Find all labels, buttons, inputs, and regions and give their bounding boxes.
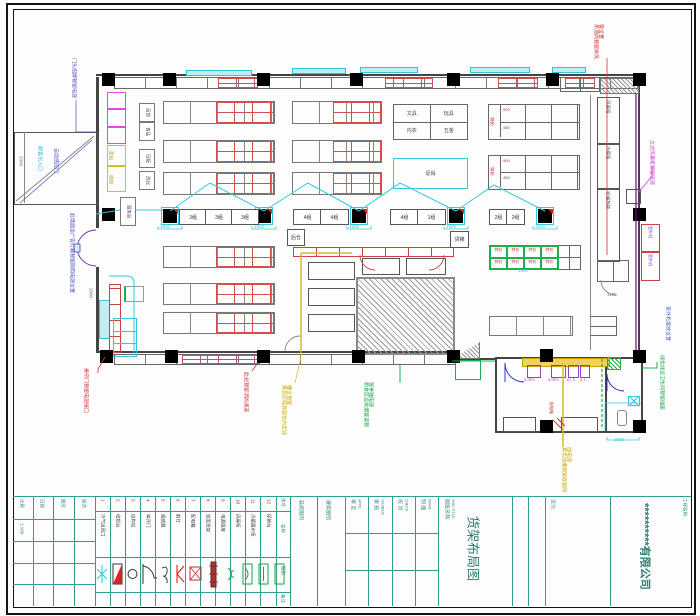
yellow-leader: [295, 357, 301, 383]
legend-name: 结构柱: [130, 514, 135, 556]
checkout-group-box: 2组: [506, 209, 525, 225]
aisle-label: 百货: [145, 108, 150, 117]
legend-no: 10: [235, 499, 240, 509]
checkout-group-box: 3组: [231, 209, 259, 225]
dim-text: 1500: [535, 224, 545, 229]
dim-text: 1500: [614, 437, 624, 442]
legend-name: 烟感器: [160, 514, 165, 556]
signoff-label: 审 核: [372, 499, 377, 525]
checkout-group-box: 3组: [179, 209, 207, 225]
red-leader: [98, 357, 257, 373]
circle-icon: [128, 570, 137, 579]
small-label-box: 后仓: [287, 229, 305, 246]
shelf-icon: [209, 562, 218, 587]
dim-text: 1500: [254, 224, 264, 229]
annotation-roller-door: 卷帘门预留电源接口: [82, 368, 98, 420]
service-desk-label: 服务台: [126, 205, 131, 219]
signoff-sub: APPD: [357, 499, 361, 525]
yellow-cable-run: [301, 253, 563, 447]
air-curtain-icon: [243, 564, 252, 584]
legend-header-note: 备注: [280, 594, 285, 606]
legend-no: 12: [266, 499, 271, 509]
legend-no: 2: [115, 499, 120, 509]
annotation-outdoor-pos: 室外机摆放位置: [664, 306, 669, 354]
legend-name: 配电箱: [190, 514, 195, 556]
info-label: 版次: [81, 499, 86, 517]
dim-text: 1100: [607, 292, 617, 297]
blue-door-arc: [607, 374, 624, 391]
signoff-label: 校 对: [396, 499, 401, 525]
annotation-entry-sign: 门头招牌预留电源: [70, 58, 75, 138]
signoff-sub: CHECK: [404, 499, 408, 525]
legend-group-header: 建筑图例: [324, 500, 329, 544]
annotation-leader: [76, 100, 96, 132]
annotation-auto-door: 自动感应门: [52, 148, 57, 202]
legend-header-name: 名称: [280, 524, 285, 536]
service-desk-box: 服务台: [120, 197, 136, 226]
annotation-vent-right: 吊顶内预留排风管位置: [592, 24, 608, 60]
legend-name: 促销台: [266, 514, 271, 556]
legend-symbols: [95, 560, 291, 590]
signoff-sub: 1014B028: [380, 499, 384, 525]
legend-no: 5: [160, 499, 165, 509]
legend-name: 冷藏展示柜: [250, 514, 255, 556]
annotation-fire-exit: 此处预留消防通道: [242, 372, 258, 416]
legend-name: 电源插座: [220, 514, 225, 556]
aisle-label-box: 百货: [139, 103, 155, 122]
legend-name: 双面货架: [205, 514, 210, 556]
legend-name: 风幕柜: [235, 514, 240, 556]
dim-text: 3300: [18, 156, 23, 176]
aisle-label-box: 洗化: [139, 171, 155, 190]
design-label: 设计:: [549, 499, 554, 523]
legend-no: 4: [145, 499, 150, 509]
equipment-code: 3-6P4: [524, 377, 535, 382]
drawing-name-label: 图纸名称:: [443, 499, 448, 539]
checkout-group-box: 4组: [390, 209, 419, 225]
annotation-air-curtain: 立式风幕柜预留电源: [648, 140, 653, 202]
dim-text: 1950: [518, 268, 528, 273]
legend-name: 射灯: [175, 514, 180, 556]
equipment-code: 5-6P4: [548, 377, 559, 382]
signoff-sub: DRAW: [427, 499, 431, 525]
dim-text: 2000: [88, 288, 93, 308]
red-door-arcs: [360, 255, 444, 270]
smoke-icon: [162, 567, 167, 583]
annotation-yellow-right: 黄色线槽预留收银网线电源: [560, 447, 582, 493]
aisle-label: 日配: [145, 154, 150, 163]
signoff-label: 审 定: [349, 499, 354, 525]
door-icon: [143, 564, 157, 584]
legend-name: 单开门: [145, 514, 150, 556]
annotation-yellow-left: 黄色区域收银台内走线槽位预留: [280, 385, 302, 435]
annotation-power-box: 配电箱: [549, 402, 553, 424]
equipment-code: 4-1: [580, 377, 586, 382]
promo-icon: [275, 564, 284, 584]
spotlight-icon: [177, 565, 184, 583]
checkout-group-box: 3组: [205, 209, 233, 225]
dim-text: 1500: [160, 224, 170, 229]
snowflake-icon: [97, 565, 107, 583]
legend-no: 7: [190, 499, 195, 509]
legend-no: 6: [175, 499, 180, 509]
annotation-green-center: 熟食区设排烟管道预留单独电源: [362, 382, 386, 428]
washroom-cyan-lines: [605, 403, 641, 431]
cooler-icon: [259, 564, 268, 584]
small-label-box: 货梯: [450, 231, 469, 248]
annotation-green-right: 绿色线设卫生间预留插座: [658, 355, 663, 427]
blue-door-arc: [505, 363, 524, 382]
socket-icon: [228, 568, 234, 580]
aisle-label-box: 食品: [139, 122, 155, 141]
cyan-counter-path: [109, 276, 134, 355]
checkout-group-box: 4组: [293, 209, 322, 225]
project-name-label: 工程名称:: [682, 498, 687, 528]
equipment-code: 1C-3: [566, 377, 575, 382]
drawing-title: 货架布局图: [466, 516, 480, 598]
job-title-label: JOB TITLE: [451, 499, 455, 539]
legend-no: 1: [100, 499, 105, 509]
cashier-icon: [113, 564, 122, 584]
legend-header-no: 序号: [280, 498, 285, 510]
annotation-entrance: 顾客出入口: [36, 146, 41, 196]
legend-no: 9: [220, 499, 225, 509]
aisle-label-box: 日配: [139, 149, 155, 168]
legend-no: 8: [205, 499, 210, 509]
info-scale-value: 1:100: [19, 523, 24, 541]
company-name: **********有限公司: [638, 503, 650, 603]
legend-name: 冷气出风口: [100, 514, 105, 556]
checkout-group-box: 4组: [320, 209, 349, 225]
info-label: 比例: [19, 499, 24, 517]
dim-text: 1500: [446, 224, 456, 229]
dim-text: 1500: [349, 224, 359, 229]
signoff-label: 制 图: [419, 499, 424, 525]
checkout-group-box: 1组: [417, 209, 446, 225]
legend-no: 3: [130, 499, 135, 509]
power-box-icon: [190, 567, 201, 580]
aisle-label: 食品: [145, 127, 150, 136]
door-arc: [285, 336, 300, 351]
info-label: 图号: [60, 499, 65, 517]
legend-group-header: 装修图例: [297, 500, 302, 544]
legend-name: 收银台: [115, 514, 120, 556]
info-label: 日期: [39, 499, 44, 517]
annotation-wall-ad: 此墙面设广告灯箱预留照明电源位置: [68, 213, 86, 305]
legend-no: 11: [250, 499, 255, 509]
aisle-label: 洗化: [145, 176, 150, 185]
